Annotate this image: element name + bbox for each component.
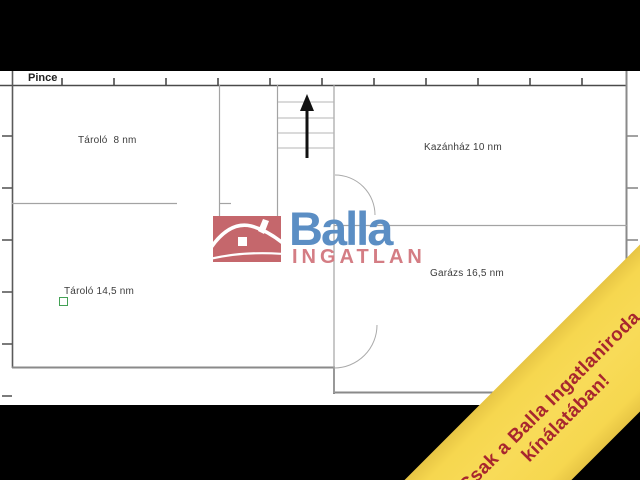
- green-marker-square: [59, 297, 68, 306]
- logo-brand-text: Balla: [289, 207, 391, 252]
- room-label-tarolo-8: Tároló 8 nm: [78, 135, 137, 146]
- room-label-kazanhaz: Kazánház 10 nm: [424, 142, 502, 153]
- logo-subtitle-text: INGATLAN: [292, 246, 426, 269]
- room-label-garazs: Garázs 16,5 nm: [430, 268, 504, 279]
- door-arc-lower: [334, 325, 377, 368]
- top-ruler: [0, 78, 627, 86]
- level-label: Pince: [28, 72, 57, 84]
- screenshot-stage: Pince Tároló 8 nm Kazánház 10 nm Tároló …: [0, 0, 640, 480]
- room-label-tarolo-14-5: Tároló 14,5 nm: [64, 286, 134, 297]
- house-icon: [213, 216, 281, 262]
- left-ruler: [2, 71, 13, 396]
